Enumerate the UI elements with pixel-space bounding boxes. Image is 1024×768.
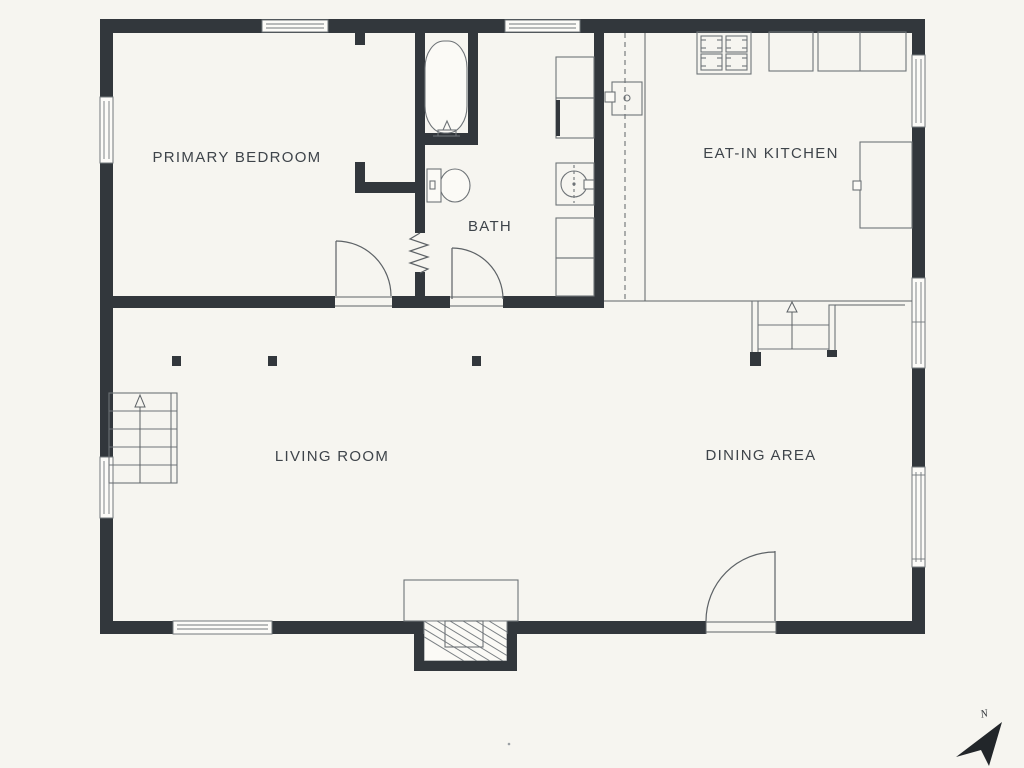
laundry-counter-1 xyxy=(556,57,594,98)
stairs-up xyxy=(750,301,905,366)
north-label: N xyxy=(978,707,990,721)
wall-hall-right xyxy=(503,296,604,308)
wall-living-bedroom xyxy=(113,296,335,308)
stair-newel-right xyxy=(827,350,837,357)
north-arrow-icon xyxy=(956,722,1002,766)
stairs-down xyxy=(109,393,177,483)
window-dining-right xyxy=(912,467,925,567)
label-dining-area: DINING AREA xyxy=(706,447,817,464)
dining-exterior-door xyxy=(706,551,776,634)
closet-stub-wall xyxy=(355,33,365,45)
bath-fixtures xyxy=(425,41,594,296)
stair-newel-left xyxy=(750,352,761,366)
label-eat-in-kitchen: EAT-IN KITCHEN xyxy=(703,145,838,162)
kitchen-sink-icon xyxy=(605,82,642,115)
bedroom-door xyxy=(335,241,392,306)
tub-alcove-right-wall xyxy=(468,33,478,133)
column-2 xyxy=(268,356,277,366)
north-compass: N xyxy=(956,707,1002,766)
window-kitchen-right xyxy=(912,55,925,127)
column-3 xyxy=(472,356,481,366)
exterior-walls xyxy=(100,19,925,634)
laundry-cabinet-2 xyxy=(556,258,594,296)
kitchen-fixtures xyxy=(604,32,912,301)
label-bath: BATH xyxy=(468,218,512,235)
stair-rail-right xyxy=(829,305,835,355)
window-bedroom-left xyxy=(100,97,113,163)
wall-bedroom-bath-lower xyxy=(415,272,425,296)
burner-ticks xyxy=(701,40,747,66)
structural-columns xyxy=(172,356,481,366)
stair-rail-left xyxy=(752,301,758,353)
closet-l-wall-horizontal xyxy=(355,182,415,193)
wall-hall-mid xyxy=(392,296,450,308)
counter-top-2 xyxy=(818,32,906,71)
washer-icon xyxy=(556,163,594,205)
stove-icon xyxy=(697,32,751,74)
floor-plan-canvas: PRIMARY BEDROOM BATH EAT-IN KITCHEN LIVI… xyxy=(0,0,1024,768)
window-living-bottom xyxy=(173,621,272,634)
toilet-icon xyxy=(427,169,470,202)
counter-top-1 xyxy=(769,32,813,71)
window-stair-right xyxy=(912,278,925,368)
laundry-cabinet-1 xyxy=(556,218,594,258)
laundry-column xyxy=(556,57,594,296)
closet-l-wall-vertical xyxy=(355,162,365,183)
window-bath-kitchen-top xyxy=(505,20,580,32)
stair-direction-arrow-icon xyxy=(135,395,145,483)
tub-alcove-bottom-wall xyxy=(415,133,478,145)
hearth xyxy=(404,580,518,621)
label-primary-bedroom: PRIMARY BEDROOM xyxy=(153,149,322,166)
bath-door xyxy=(450,248,503,306)
appliance-front-edge xyxy=(556,100,560,136)
page-dot xyxy=(508,743,511,746)
refrigerator-icon xyxy=(853,142,912,228)
laundry-counter-2 xyxy=(556,98,594,138)
label-living-room: LIVING ROOM xyxy=(275,448,389,465)
column-1 xyxy=(172,356,181,366)
window-bedroom-top xyxy=(262,20,328,32)
wall-break-zigzag-icon xyxy=(410,233,428,273)
windows xyxy=(100,20,925,634)
floor-plan-page: PRIMARY BEDROOM BATH EAT-IN KITCHEN LIVI… xyxy=(0,0,1024,768)
bathtub-icon xyxy=(425,41,467,136)
wall-bath-kitchen xyxy=(594,19,604,308)
window-living-left xyxy=(100,457,113,518)
